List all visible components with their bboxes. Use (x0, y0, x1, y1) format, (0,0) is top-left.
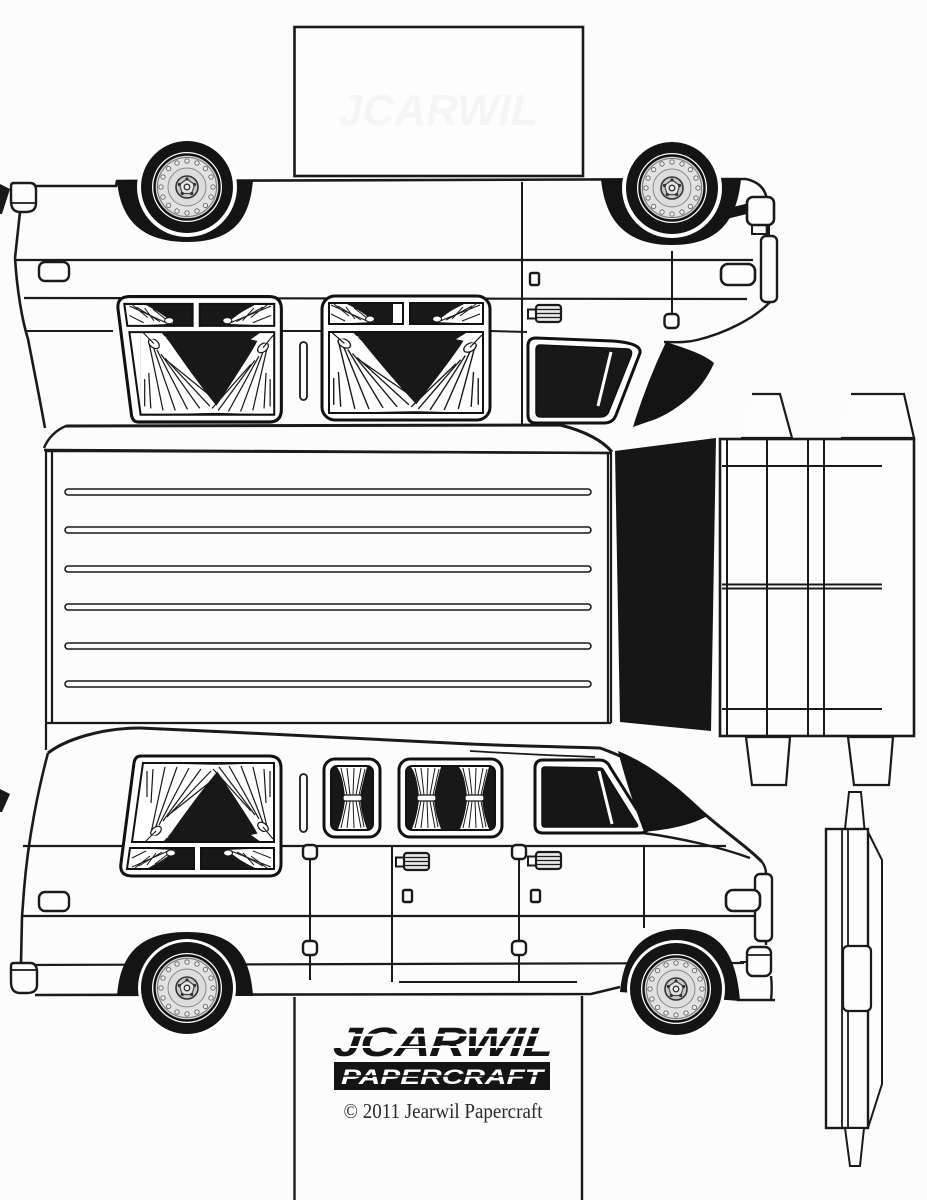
svg-text:JCARWIL: JCARWIL (331, 1019, 555, 1065)
svg-text:© 2011 Jearwil Papercraft: © 2011 Jearwil Papercraft (344, 1099, 543, 1123)
svg-text:JCARWIL: JCARWIL (338, 86, 538, 135)
svg-text:PAPERCRAFT: PAPERCRAFT (341, 1066, 546, 1089)
